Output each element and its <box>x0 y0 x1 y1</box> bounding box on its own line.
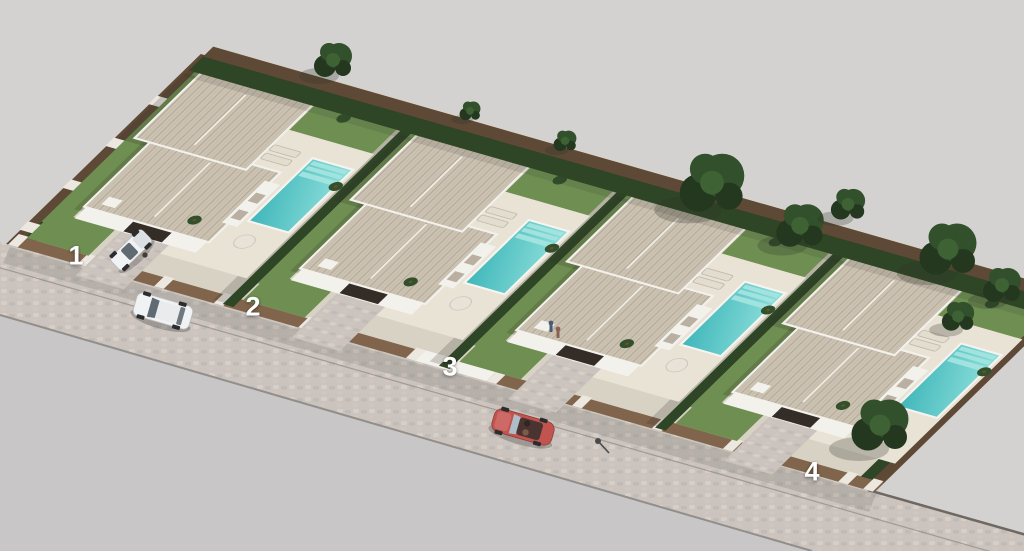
plot-label-4: 4 <box>804 459 819 486</box>
plot-label-1: 1 <box>68 243 83 270</box>
development-render: Aerial 3D architectural rendering of a r… <box>0 0 1024 551</box>
person <box>142 252 147 257</box>
aerial-render: Aerial 3D architectural rendering of a r… <box>0 0 1024 551</box>
plot-label-2: 2 <box>245 294 260 321</box>
plot-label-3: 3 <box>442 354 457 381</box>
